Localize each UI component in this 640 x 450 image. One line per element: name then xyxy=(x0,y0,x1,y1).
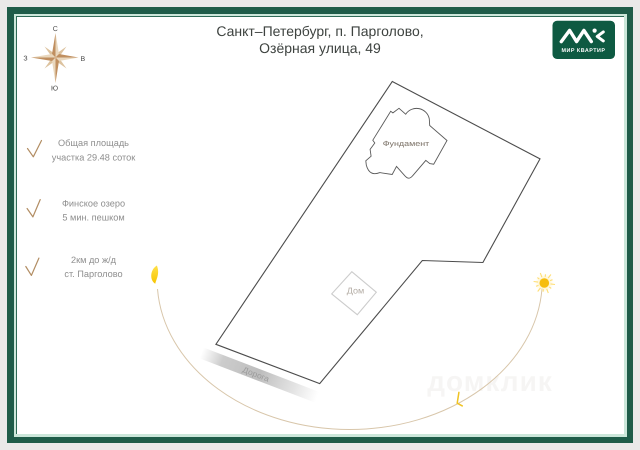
svg-text:З: З xyxy=(23,55,27,62)
svg-text:Озёрная улица, 49: Озёрная улица, 49 xyxy=(259,40,381,56)
svg-text:МИР КВАРТИР: МИР КВАРТИР xyxy=(561,48,605,54)
svg-text:участка 29.48 соток: участка 29.48 соток xyxy=(52,153,137,163)
svg-text:домклик: домклик xyxy=(427,366,553,397)
svg-text:5 мин. пешком: 5 мин. пешком xyxy=(62,213,124,223)
svg-text:Общая площадь: Общая площадь xyxy=(58,138,129,148)
svg-text:С: С xyxy=(53,26,58,33)
svg-text:2км до ж/д: 2км до ж/д xyxy=(71,255,117,265)
svg-text:ст. Парголово: ст. Парголово xyxy=(64,269,122,279)
svg-text:Фундамент: Фундамент xyxy=(383,139,430,148)
svg-text:Санкт–Петербург, п. Парголово,: Санкт–Петербург, п. Парголово, xyxy=(216,23,423,39)
svg-text:В: В xyxy=(80,56,85,63)
svg-text:Ю: Ю xyxy=(51,85,58,92)
svg-text:Дом: Дом xyxy=(347,286,365,296)
svg-text:Финское озеро: Финское озеро xyxy=(62,198,125,208)
